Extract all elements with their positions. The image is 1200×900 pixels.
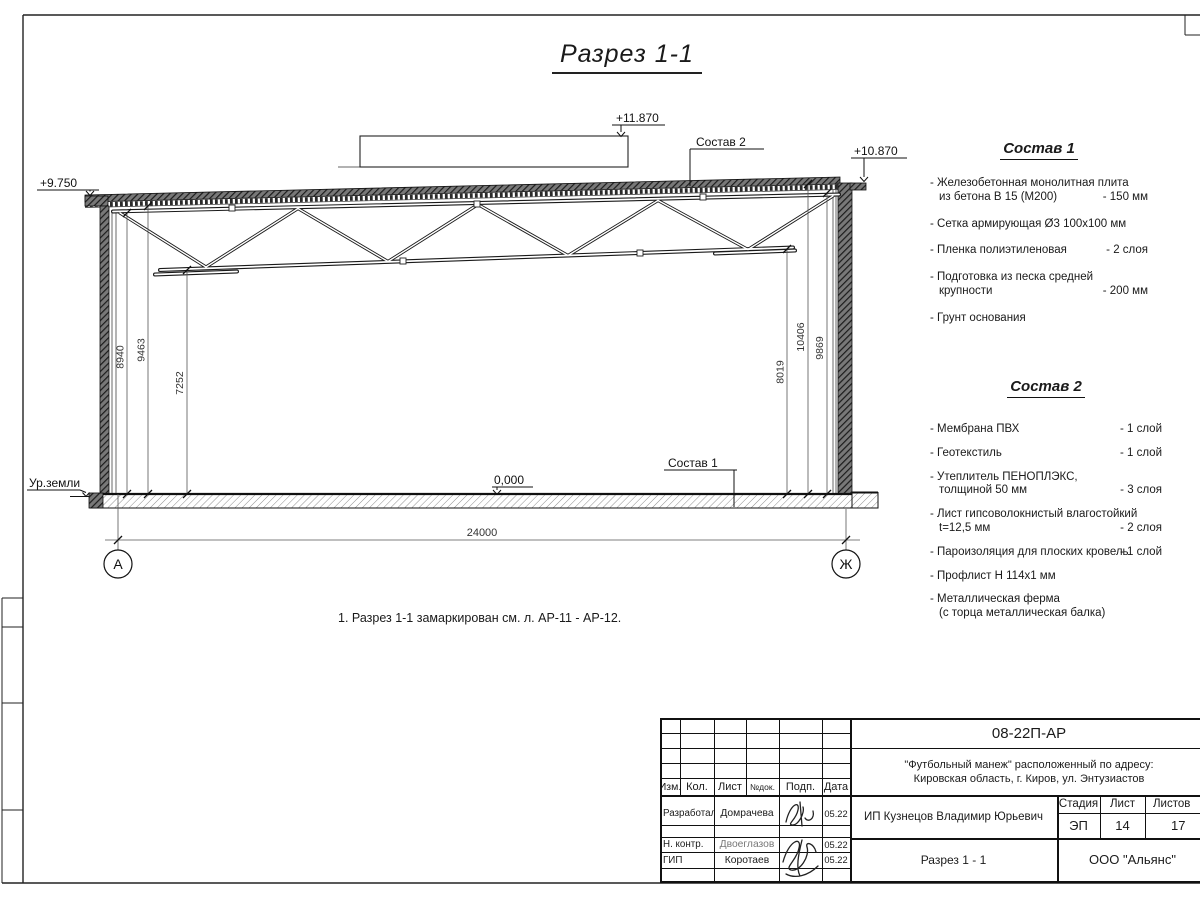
drawing-note: 1. Разрез 1-1 замаркирован см. л. АР-11 …	[338, 611, 621, 625]
dim-span-24000: 24000	[467, 527, 498, 539]
col-header-sheet: Лист	[1100, 795, 1145, 813]
sheet-number: 14	[1100, 813, 1145, 838]
left-footing	[89, 493, 103, 508]
list-item: - Подготовка из песка средней крупности …	[930, 271, 1148, 299]
composition-1-title: Состав 1	[1000, 140, 1078, 160]
drawing-sheet: { "page": { "title": "Разрез 1-1", "note…	[0, 0, 1200, 900]
row-date: 05.22	[822, 852, 850, 868]
right-footing	[852, 493, 878, 509]
vertical-dimensions: 8940 9463 7252 8019 10406 9869	[115, 180, 832, 498]
sheets-total: 17	[1145, 813, 1200, 838]
list-item: - Лист гипсоволокнистый влагостойкий t=1…	[930, 508, 1162, 536]
dim-9869: 9869	[814, 336, 826, 360]
company-name: ООО "Альянс"	[1057, 838, 1200, 881]
signature-marks	[778, 796, 824, 881]
col-header-podp: Подп.	[779, 778, 822, 795]
row-name: Двоеглазов	[715, 837, 779, 852]
row-name: Коротаев	[715, 852, 779, 868]
project-name: "Футбольный манеж" расположенный по адре…	[850, 748, 1200, 795]
list-item: - Грунт основания	[930, 312, 1148, 326]
row-role: Н. контр.	[661, 837, 715, 852]
list-item: - Металлическая ферма (с торца металличе…	[930, 593, 1162, 621]
dim-10406: 10406	[795, 322, 807, 351]
row-date: 05.22	[822, 837, 850, 852]
dim-8940: 8940	[115, 345, 127, 369]
list-item: - Мембрана ПВХ - 1 слой	[930, 423, 1162, 437]
dim-8019: 8019	[775, 360, 787, 384]
right-wall	[833, 183, 866, 495]
ground-level-label: Ур.земли	[29, 476, 80, 490]
leader-sostav1-label: Состав 1	[668, 456, 718, 470]
col-header-izm: Изм.	[660, 778, 680, 795]
title-block: Изм. Кол. Лист №док. Подп. Дата Разработ…	[660, 718, 1200, 883]
col-header-data: Дата	[822, 778, 850, 795]
col-header-sheets: Листов	[1145, 795, 1200, 813]
list-item: - Профлист Н 114х1 мм	[930, 570, 1162, 584]
leader-sostav2-label: Состав 2	[696, 135, 746, 149]
dim-9463: 9463	[136, 338, 148, 362]
sheet-title: Разрез 1 - 1	[850, 838, 1057, 881]
list-item: - Пленка полиэтиленовая - 2 слоя	[930, 244, 1148, 258]
composition-2-title: Состав 2	[1007, 378, 1085, 398]
elevation-marks: +9.750 +11.870 +10.870 0,000 Ур.земли Со…	[27, 111, 907, 507]
dimension-ticks	[123, 180, 831, 498]
composition-list-2: Состав 2 - Мембрана ПВХ - 1 слой - Геоте…	[930, 378, 1162, 631]
col-header-ndok: №док.	[746, 778, 779, 795]
col-header-stadia: Стадия	[1057, 795, 1100, 813]
col-header-list: Лист	[714, 778, 746, 795]
elev-left-label: +9.750	[40, 176, 77, 190]
list-item: - Железобетонная монолитная плита из бет…	[930, 177, 1148, 205]
dim-7252: 7252	[174, 371, 186, 395]
stadia-value: ЭП	[1057, 813, 1100, 838]
page-title: Разрез 1-1	[552, 40, 702, 74]
composition-list-1: Состав 1 - Железобетонная монолитная пли…	[930, 140, 1148, 339]
eaves-block	[85, 196, 108, 206]
col-header-kol: Кол.	[680, 778, 714, 795]
elev-right-label: +10.870	[854, 144, 898, 158]
row-date: 05.22	[822, 802, 850, 825]
parapet-cap	[850, 183, 866, 190]
client-name: ИП Кузнецов Владимир Юрьевич	[850, 795, 1057, 838]
doc-number: 08-22П-АР	[850, 718, 1200, 748]
roof-truss	[113, 194, 839, 275]
rooftop-unit	[338, 136, 628, 167]
row-name: Домрачева	[715, 802, 779, 825]
axis-label-zh: Ж	[840, 556, 853, 572]
row-role: Разработал	[661, 802, 715, 825]
list-item: - Сетка армирующая Ø3 100х100 мм	[930, 218, 1148, 232]
floor-slab	[70, 493, 878, 509]
axis-label-a: А	[113, 556, 123, 572]
elev-box-label: +11.870	[616, 111, 659, 125]
elev-floor-label: 0,000	[494, 473, 524, 487]
row-role: ГИП	[661, 852, 715, 868]
list-item: - Геотекстиль - 1 слой	[930, 447, 1162, 461]
list-item: - Утеплитель ПЕНОПЛЭКС, толщиной 50 мм -…	[930, 471, 1162, 499]
list-item: - Пароизоляция для плоских кровель - 1 с…	[930, 546, 1162, 560]
